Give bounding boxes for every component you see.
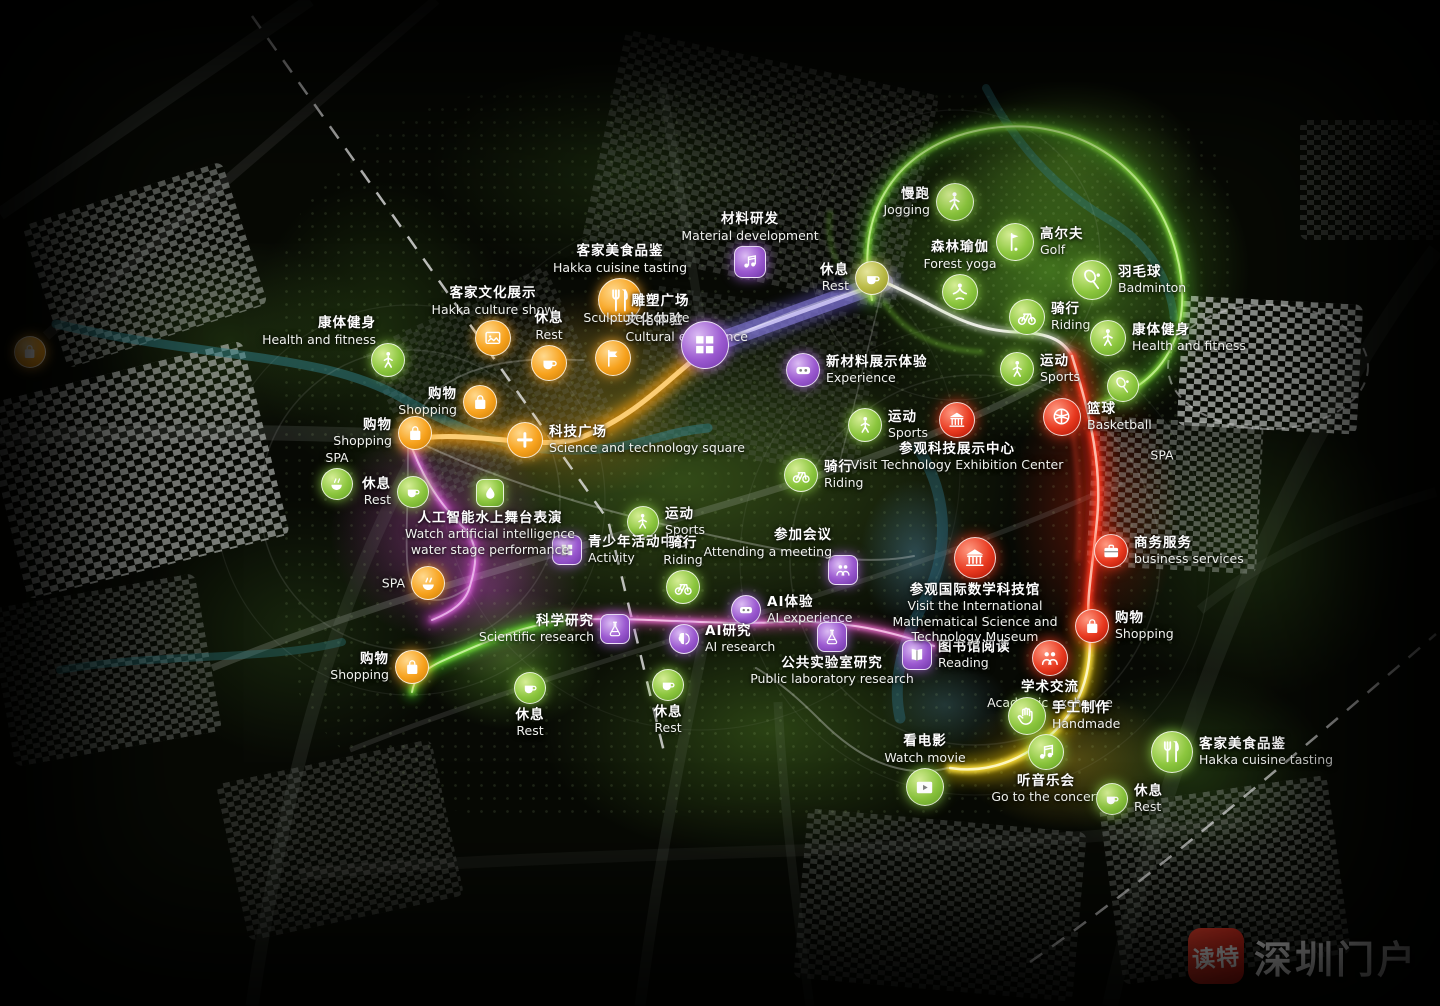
people-icon (1032, 640, 1068, 676)
poi-label: 休息Rest (535, 310, 564, 342)
poi-zh-label: 休息 (362, 476, 391, 492)
case-icon (1094, 534, 1128, 568)
poi-zh-label: 听音乐会 (991, 773, 1100, 789)
poi-zh-label: 科学研究 (479, 613, 594, 629)
cup-icon (514, 672, 546, 704)
poi-zh-label: 参观科技展示中心 (837, 441, 1077, 457)
poi-zh-label: 运动 (665, 506, 705, 522)
poi-en-label: Attending a meeting (704, 544, 832, 559)
cup-icon (652, 669, 684, 701)
grid-icon (681, 321, 729, 369)
poi-label: 手工制作Handmade (1052, 700, 1120, 732)
poi-label: SPA (382, 575, 405, 590)
poi-en-label: Visit Technology Exhibition Center (837, 457, 1077, 472)
poi-label: 骑行Riding (1051, 301, 1090, 333)
poi-label: 科学研究Scientific research (479, 613, 594, 645)
poi-zh-label: 商务服务 (1134, 535, 1244, 551)
poi-zh-label: AI体验 (767, 594, 853, 610)
poi-label: 看电影Watch movie (884, 733, 965, 765)
racket-icon (1072, 260, 1112, 300)
poi-en-label: Reading (938, 656, 1011, 671)
bag-icon (1075, 609, 1109, 643)
book-icon (902, 640, 932, 670)
poi-label: AI研究AI research (705, 623, 775, 655)
poi-en-label: Badminton (1118, 281, 1186, 296)
golf-icon (996, 223, 1034, 261)
poi-en-label: Health and fitness (262, 332, 376, 347)
poi-label: 康体健身Health and fitness (262, 315, 376, 347)
poi-zh-label: 看电影 (884, 733, 965, 749)
poi-en-label: SPA (325, 450, 348, 465)
poi-label: 运动Sports (888, 409, 928, 441)
poi-label: 购物Shopping (330, 651, 389, 683)
note-icon (1028, 734, 1064, 770)
poi-label: 人工智能水上舞台表演Watch artificial intelligence … (393, 510, 588, 557)
poi-en-label: Jogging (883, 203, 930, 218)
cup-icon (397, 476, 429, 508)
poi-label: 雕塑广场Sculpture square (583, 293, 689, 325)
poi-en-label: Rest (516, 723, 545, 738)
poi-label: 休息Rest (820, 262, 849, 294)
poi-label: 参观国际数学科技馆Visit the International Mathema… (880, 582, 1070, 644)
poi-label: 慢跑Jogging (883, 186, 930, 218)
poi-zh-label: 购物 (330, 651, 389, 667)
poi-label: 商务服务business services (1134, 535, 1244, 567)
brain-icon (669, 624, 699, 654)
poi-label: 休息Rest (516, 707, 545, 739)
bag-icon (14, 336, 46, 368)
poi-zh-label: 骑行 (1051, 301, 1090, 317)
poi-label: 购物Shopping (333, 417, 392, 449)
poi-en-label: Sports (1040, 370, 1080, 385)
poi-en-label: Forest yoga (924, 256, 997, 271)
poi-label: 康体健身Health and fitness (1132, 322, 1246, 354)
poi-en-label: AI research (705, 640, 775, 655)
bag-icon (398, 416, 432, 450)
poi-zh-label: 客家美食品鉴 (553, 243, 687, 259)
plus-icon (507, 422, 543, 458)
poi-en-label: Shopping (1115, 627, 1174, 642)
poi-zh-label: AI研究 (705, 623, 775, 639)
poi-zh-label: 慢跑 (883, 186, 930, 202)
poi-en-label: Health and fitness (1132, 339, 1246, 354)
poi-zh-label: 雕塑广场 (583, 293, 689, 309)
poi-en-label: Shopping (330, 668, 389, 683)
poi-en-label: Shopping (333, 434, 392, 449)
poi-en-label: Hakka cuisine tasting (553, 260, 687, 275)
poi-zh-label: 篮球 (1087, 401, 1152, 417)
poi-en-label: Riding (663, 552, 702, 567)
vr-icon (786, 353, 820, 387)
poi-zh-label: 休息 (1134, 783, 1163, 799)
ball-icon (1043, 398, 1081, 436)
drop-icon (476, 479, 504, 507)
poi-zh-label: 参观国际数学科技馆 (880, 582, 1070, 598)
person-icon (936, 183, 974, 221)
poi-label: 公共实验室研究Public laboratory research (740, 655, 925, 687)
poi-en-label: business services (1134, 552, 1244, 567)
poi-zh-label: 康体健身 (1132, 322, 1246, 338)
person-icon (371, 343, 405, 377)
person-icon (1090, 320, 1126, 356)
spa-icon (321, 468, 353, 500)
poi-zh-label: 公共实验室研究 (740, 655, 925, 671)
poi-zh-label: 森林瑜伽 (924, 239, 997, 255)
poi-label: 科技广场Science and technology square (549, 424, 769, 456)
poi-en-label: Watch artificial intelligence water stag… (393, 526, 588, 557)
poi-en-label: Public laboratory research (740, 671, 925, 686)
poi-en-label: Go to the concert (991, 789, 1100, 804)
poi-label: SPA (1150, 447, 1173, 462)
poi-zh-label: 科技广场 (549, 424, 769, 440)
poi-label: 羽毛球Badminton (1118, 264, 1186, 296)
bag-icon (463, 385, 497, 419)
poi-zh-label: 人工智能水上舞台表演 (393, 510, 588, 526)
poi-en-label: Golf (1040, 243, 1084, 258)
poi-label: 休息Rest (1134, 783, 1163, 815)
poi-en-label: SPA (382, 575, 405, 590)
poi-en-label: Material development (681, 228, 818, 243)
poi-en-label: Rest (820, 279, 849, 294)
people-icon (828, 555, 858, 585)
poi-en-label: Hakka cuisine tasting (1199, 753, 1333, 768)
film-icon (906, 768, 944, 806)
poi-en-label: Rest (362, 493, 391, 508)
poi-zh-label: 参加会议 (704, 527, 832, 543)
poi-label: 购物Shopping (1115, 610, 1174, 642)
poi-en-label: Watch movie (884, 750, 965, 765)
poi-zh-label: 休息 (516, 707, 545, 723)
note-icon (734, 246, 766, 278)
poi-zh-label: 运动 (1040, 353, 1080, 369)
bike-icon (1009, 299, 1045, 335)
poi-zh-label: 高尔夫 (1040, 226, 1084, 242)
poi-en-label: Shopping (398, 403, 457, 418)
poi-zh-label: 运动 (888, 409, 928, 425)
poi-zh-label: 手工制作 (1052, 700, 1120, 716)
poi-label: 骑行Riding (663, 535, 702, 567)
person-icon (1000, 352, 1034, 386)
flask-icon (817, 622, 847, 652)
hand-icon (1008, 697, 1046, 735)
bike-icon (666, 570, 700, 604)
poi-zh-label: 休息 (820, 262, 849, 278)
poi-zh-label: 骑行 (663, 535, 702, 551)
poi-label: SPA (325, 450, 348, 465)
poi-label: 篮球Basketball (1087, 401, 1152, 433)
poi-en-label: Handmade (1052, 717, 1120, 732)
poi-en-label: Riding (824, 476, 863, 491)
cup-icon (855, 261, 889, 295)
racket-icon (1107, 370, 1139, 402)
yoga-icon (942, 274, 978, 310)
poi-zh-label: 购物 (398, 386, 457, 402)
poi-label: 参加会议Attending a meeting (704, 527, 832, 559)
poi-zh-label: 康体健身 (262, 315, 376, 331)
poi-zh-label: 购物 (1115, 610, 1174, 626)
planning-map: 慢跑Jogging高尔夫Golf森林瑜伽Forest yoga羽毛球Badmin… (0, 0, 1440, 1006)
poi-label: 运动Sports (665, 506, 705, 538)
dute-logo-icon: 读特 (1188, 928, 1244, 984)
poi-zh-label: 休息 (535, 310, 564, 326)
poi-en-label: Experience (826, 371, 928, 386)
poi-label: 参观科技展示中心Visit Technology Exhibition Cent… (837, 441, 1077, 473)
poi-en-label: Science and technology square (549, 441, 769, 456)
poi-label: 休息Rest (654, 704, 683, 736)
cup-icon (1096, 783, 1128, 815)
poi-label: 客家美食品鉴Hakka cuisine tasting (1199, 736, 1333, 768)
poi-label: 客家美食品鉴Hakka cuisine tasting (553, 243, 687, 275)
poi-zh-label: 客家文化展示 (432, 285, 555, 301)
poi-en-label: Rest (654, 720, 683, 735)
poi-zh-label: 新材料展示体验 (826, 354, 928, 370)
poi-label: 材料研发Material development (681, 211, 818, 243)
poi-en-label: Sports (888, 426, 928, 441)
poi-label: 新材料展示体验Experience (826, 354, 928, 386)
poi-en-label: Rest (1134, 800, 1163, 815)
flask-icon (600, 614, 630, 644)
person-icon (848, 408, 882, 442)
poi-label: 听音乐会Go to the concert (991, 773, 1100, 805)
watermark-site-name: 深圳门户 (1254, 929, 1418, 984)
fork-icon (1151, 731, 1193, 773)
spa-icon (411, 566, 445, 600)
poi-en-label: Scientific research (479, 630, 594, 645)
poi-zh-label: 学术交流 (987, 679, 1113, 695)
poi-en-label: SPA (1150, 447, 1173, 462)
bank-icon (939, 402, 975, 438)
dute-logo-text: 读特 (1191, 937, 1241, 974)
poi-en-label: Riding (1051, 318, 1090, 333)
poi-en-label: Basketball (1087, 418, 1152, 433)
poi-label: 森林瑜伽Forest yoga (924, 239, 997, 271)
bank-icon (954, 537, 996, 579)
poi-en-label: Rest (535, 327, 564, 342)
bike-icon (784, 458, 818, 492)
poi-label: 休息Rest (362, 476, 391, 508)
poi-zh-label: 休息 (654, 704, 683, 720)
poi-en-label: Visit the International Mathematical Sci… (880, 598, 1070, 644)
vr-icon (731, 595, 761, 625)
poi-label: 运动Sports (1040, 353, 1080, 385)
poi-label: 购物Shopping (398, 386, 457, 418)
poi-zh-label: 购物 (333, 417, 392, 433)
poi-zh-label: 羽毛球 (1118, 264, 1186, 280)
poi-zh-label: 材料研发 (681, 211, 818, 227)
poi-en-label: Sculpture square (583, 310, 689, 325)
flag-icon (595, 340, 631, 376)
bag-icon (395, 650, 429, 684)
poi-zh-label: 客家美食品鉴 (1199, 736, 1333, 752)
photo-icon (475, 320, 511, 356)
poi-label: 高尔夫Golf (1040, 226, 1084, 258)
poi-layer: 慢跑Jogging高尔夫Golf森林瑜伽Forest yoga羽毛球Badmin… (0, 0, 1440, 1006)
cup-icon (531, 345, 567, 381)
watermark: 读特 深圳门户 (1188, 928, 1418, 984)
